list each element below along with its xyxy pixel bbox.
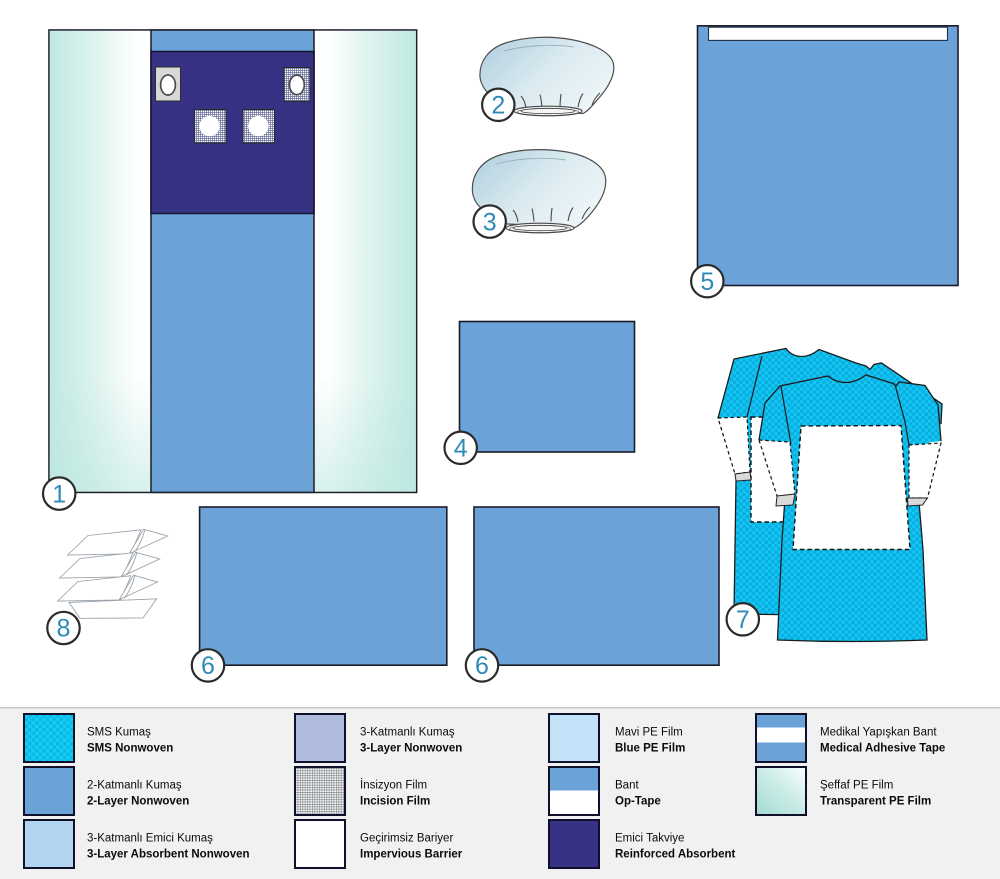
svg-text:2: 2: [491, 92, 505, 120]
svg-text:Bant: Bant: [615, 780, 639, 792]
svg-text:SMS Nonwoven: SMS Nonwoven: [87, 743, 173, 755]
svg-text:3-Katmanlı Emici Kumaş: 3-Katmanlı Emici Kumaş: [87, 833, 213, 845]
svg-text:3-Katmanlı Kumaş: 3-Katmanlı Kumaş: [360, 727, 455, 739]
svg-text:Emici Takviye: Emici Takviye: [615, 833, 684, 845]
svg-text:Medikal Yapışkan Bant: Medikal Yapışkan Bant: [820, 727, 937, 739]
svg-text:Geçirimsiz Bariyer: Geçirimsiz Bariyer: [360, 833, 453, 845]
svg-text:3-Layer Absorbent Nonwoven: 3-Layer Absorbent Nonwoven: [87, 849, 250, 861]
svg-text:2-Katmanlı Kumaş: 2-Katmanlı Kumaş: [87, 780, 182, 792]
svg-text:Mavi PE Film: Mavi PE Film: [615, 727, 683, 739]
svg-text:5: 5: [700, 268, 714, 296]
svg-text:Medical Adhesive Tape: Medical Adhesive Tape: [820, 743, 945, 755]
svg-text:8: 8: [57, 615, 71, 643]
svg-text:4: 4: [454, 435, 468, 463]
svg-text:Şeffaf PE Film: Şeffaf PE Film: [820, 780, 893, 792]
svg-text:SMS Kumaş: SMS Kumaş: [87, 727, 151, 739]
svg-text:Incision Film: Incision Film: [360, 796, 430, 808]
svg-text:Impervious Barrier: Impervious Barrier: [360, 849, 463, 861]
svg-text:Reinforced Absorbent: Reinforced Absorbent: [615, 849, 736, 861]
svg-text:1: 1: [52, 480, 66, 508]
svg-text:Transparent PE Film: Transparent PE Film: [820, 796, 931, 808]
svg-text:Op-Tape: Op-Tape: [615, 796, 661, 808]
svg-text:3: 3: [483, 208, 497, 236]
svg-text:İnsizyon Film: İnsizyon Film: [360, 779, 427, 792]
svg-text:7: 7: [736, 606, 750, 634]
svg-text:2-Layer Nonwoven: 2-Layer Nonwoven: [87, 796, 189, 808]
svg-text:6: 6: [201, 652, 215, 680]
svg-text:3-Layer Nonwoven: 3-Layer Nonwoven: [360, 743, 462, 755]
svg-text:Blue PE Film: Blue PE Film: [615, 743, 685, 755]
svg-text:6: 6: [475, 652, 489, 680]
